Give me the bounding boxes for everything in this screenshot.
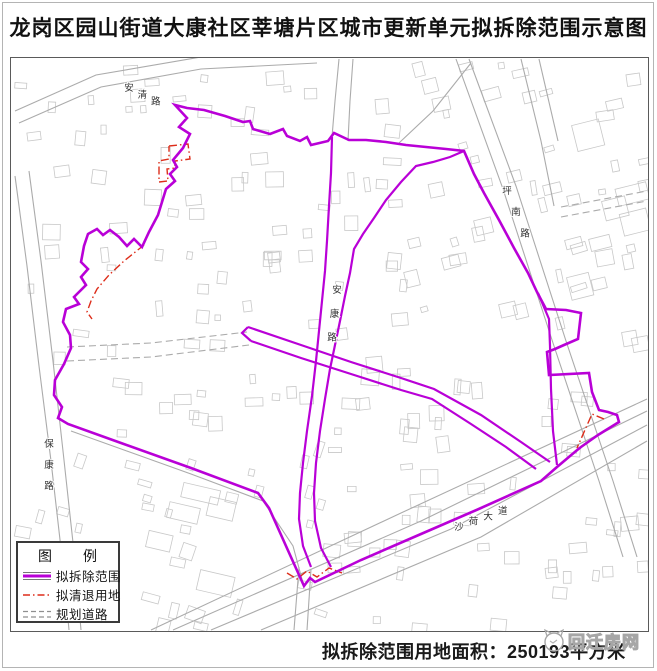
- watermark-label: 回迁房网: [568, 628, 640, 653]
- legend-item-demolition: 拟拆除范围: [18, 566, 118, 585]
- planned-road-symbol: [22, 607, 52, 621]
- road-label-baokang: 保: [44, 438, 54, 450]
- map-frame: 安清路坪南路保康路安康路沙荷大道 图 例 拟拆除范围 拟清退用地: [10, 57, 649, 632]
- legend-box: 图 例 拟拆除范围 拟清退用地 规: [16, 541, 120, 623]
- road-label-anqing: 路: [151, 96, 161, 108]
- legend-title: 图 例: [18, 546, 118, 566]
- road-label-pingnan: 南: [511, 206, 521, 218]
- legend-item-label: 规划道路: [56, 604, 108, 623]
- road-label-pingnan: 坪: [502, 185, 512, 197]
- road-label-baokang: 路: [44, 480, 54, 492]
- legend-item-label: 拟拆除范围: [56, 566, 121, 585]
- road-label-shahe: 荷: [469, 517, 479, 528]
- watermark-icon: [538, 625, 568, 655]
- road-label-shahe: 沙: [454, 522, 464, 533]
- road-label-shahe: 大: [483, 510, 493, 522]
- demolition-line-symbol: [22, 569, 52, 583]
- legend-item-planned-road: 规划道路: [18, 604, 118, 623]
- legend-item-clearance: 拟清退用地: [18, 585, 118, 604]
- page-title: 龙岗区园山街道大康社区莘塘片区城市更新单元拟拆除范围示意图: [0, 12, 657, 42]
- clearance-line-symbol: [22, 588, 52, 602]
- road-label-anqing: 安: [124, 82, 134, 94]
- road-label-anqing: 清: [138, 89, 148, 101]
- road-label-ankang: 路: [327, 332, 337, 344]
- road-label-ankang: 安: [332, 284, 342, 296]
- page: 龙岗区园山街道大康社区莘塘片区城市更新单元拟拆除范围示意图 安清路坪南路保康路安…: [0, 0, 657, 671]
- watermark: 回迁房网: [538, 625, 640, 655]
- road-label-pingnan: 路: [520, 227, 530, 239]
- road-label-baokang: 康: [44, 459, 54, 471]
- legend-item-label: 拟清退用地: [56, 585, 121, 604]
- road-label-ankang: 康: [330, 308, 340, 320]
- road-label-shahe: 道: [498, 505, 508, 517]
